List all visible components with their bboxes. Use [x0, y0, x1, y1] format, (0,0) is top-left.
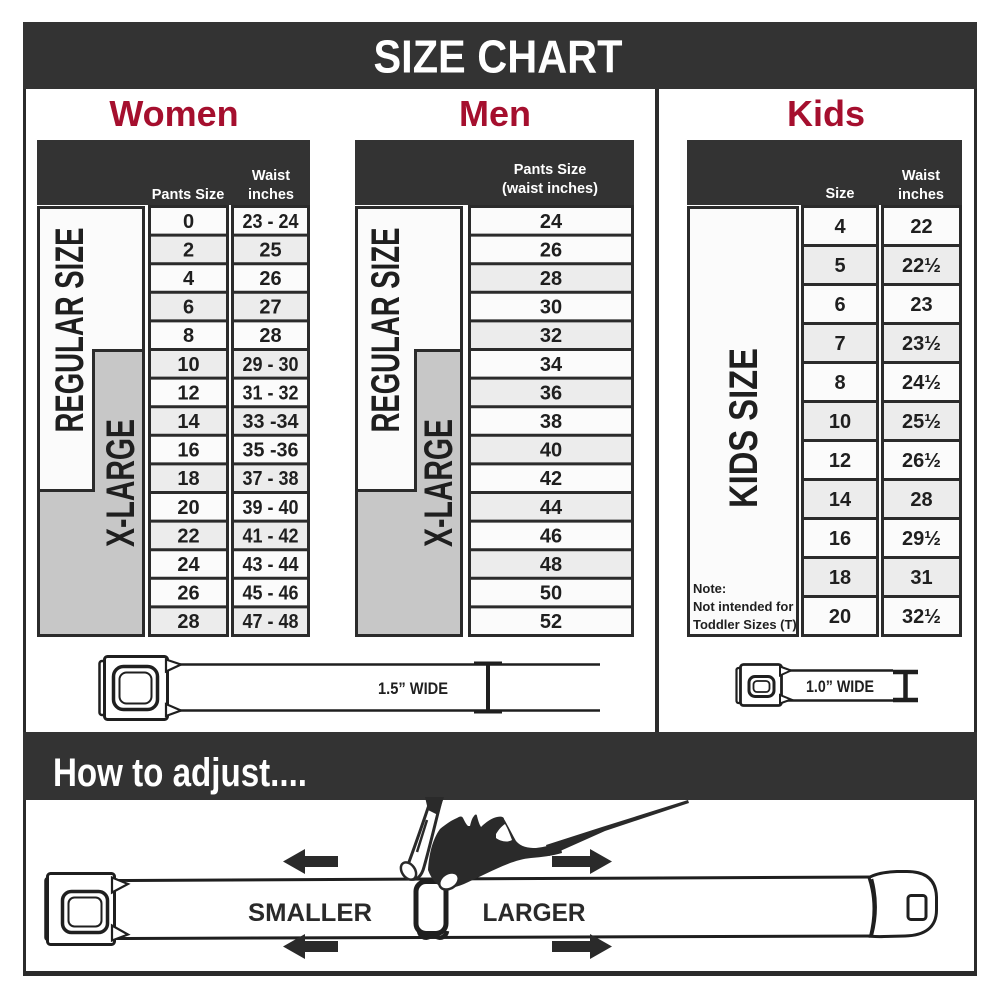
svg-text:SMALLER: SMALLER [248, 899, 372, 927]
svg-text:12: 12 [177, 382, 199, 404]
svg-text:6: 6 [183, 297, 194, 319]
svg-text:Men: Men [459, 93, 531, 134]
svg-text:How to adjust....: How to adjust.... [53, 751, 307, 795]
svg-text:40: 40 [540, 440, 562, 462]
svg-text:1.5” WIDE: 1.5” WIDE [378, 679, 448, 698]
svg-text:KIDS SIZE: KIDS SIZE [722, 348, 766, 508]
svg-text:22½: 22½ [902, 255, 941, 277]
svg-text:32½: 32½ [902, 606, 941, 628]
svg-text:47 - 48: 47 - 48 [243, 611, 299, 633]
svg-text:23½: 23½ [902, 333, 941, 355]
svg-text:12: 12 [829, 450, 851, 472]
svg-text:22: 22 [177, 525, 199, 547]
svg-text:25: 25 [259, 239, 281, 261]
svg-text:SIZE CHART: SIZE CHART [374, 31, 623, 83]
svg-text:24: 24 [540, 211, 563, 233]
svg-text:X-LARGE: X-LARGE [417, 419, 461, 547]
svg-text:14: 14 [177, 411, 200, 433]
svg-text:34: 34 [540, 354, 563, 376]
svg-text:10: 10 [177, 354, 199, 376]
svg-text:2: 2 [183, 239, 194, 261]
svg-text:X-LARGE: X-LARGE [99, 419, 143, 547]
svg-text:50: 50 [540, 583, 562, 605]
svg-text:7: 7 [834, 333, 845, 355]
svg-text:Waist: Waist [902, 168, 940, 184]
svg-text:REGULAR SIZE: REGULAR SIZE [48, 228, 92, 433]
svg-text:52: 52 [540, 611, 562, 633]
svg-text:31: 31 [910, 567, 932, 589]
svg-text:Waist: Waist [252, 168, 290, 184]
svg-text:26: 26 [259, 268, 281, 290]
svg-text:39 - 40: 39 - 40 [243, 497, 299, 519]
svg-text:REGULAR SIZE: REGULAR SIZE [364, 228, 408, 433]
svg-text:Pants Size: Pants Size [152, 187, 225, 203]
svg-text:28: 28 [910, 489, 932, 511]
svg-text:Size: Size [825, 186, 854, 202]
svg-text:Women: Women [109, 93, 238, 134]
svg-text:48: 48 [540, 554, 562, 576]
svg-text:(waist inches): (waist inches) [502, 181, 598, 197]
svg-text:Pants Size: Pants Size [514, 162, 587, 178]
svg-text:20: 20 [829, 606, 851, 628]
svg-text:29½: 29½ [902, 528, 941, 550]
svg-text:44: 44 [540, 497, 563, 519]
svg-text:30: 30 [540, 297, 562, 319]
svg-text:43 - 44: 43 - 44 [243, 554, 300, 576]
svg-text:26: 26 [177, 583, 199, 605]
svg-text:5: 5 [834, 255, 845, 277]
svg-text:22: 22 [910, 216, 932, 238]
svg-text:26½: 26½ [902, 450, 941, 472]
svg-text:29 - 30: 29 - 30 [243, 354, 299, 376]
svg-text:1.0” WIDE: 1.0” WIDE [806, 677, 874, 696]
svg-text:0: 0 [183, 211, 194, 233]
svg-text:42: 42 [540, 468, 562, 490]
svg-text:18: 18 [829, 567, 851, 589]
svg-text:24½: 24½ [902, 372, 941, 394]
svg-text:32: 32 [540, 325, 562, 347]
svg-text:16: 16 [829, 528, 851, 550]
svg-text:36: 36 [540, 382, 562, 404]
svg-text:4: 4 [183, 268, 195, 290]
svg-text:28: 28 [259, 325, 281, 347]
svg-text:LARGER: LARGER [483, 899, 586, 927]
svg-text:Toddler Sizes (T): Toddler Sizes (T) [693, 617, 797, 632]
svg-text:46: 46 [540, 525, 562, 547]
svg-text:Not intended for: Not intended for [693, 599, 793, 614]
svg-text:25½: 25½ [902, 411, 941, 433]
svg-text:8: 8 [834, 372, 845, 394]
svg-text:4: 4 [834, 216, 846, 238]
svg-text:23: 23 [910, 294, 932, 316]
svg-text:14: 14 [829, 489, 852, 511]
svg-text:8: 8 [183, 325, 194, 347]
svg-text:31 - 32: 31 - 32 [243, 382, 299, 404]
svg-text:37 - 38: 37 - 38 [243, 468, 299, 490]
svg-text:20: 20 [177, 497, 199, 519]
svg-text:41 - 42: 41 - 42 [243, 525, 299, 547]
svg-text:45 - 46: 45 - 46 [243, 583, 299, 605]
svg-text:inches: inches [248, 187, 294, 203]
svg-text:10: 10 [829, 411, 851, 433]
svg-text:Kids: Kids [787, 93, 865, 134]
svg-text:28: 28 [540, 268, 562, 290]
svg-text:24: 24 [177, 554, 200, 576]
svg-text:26: 26 [540, 239, 562, 261]
svg-text:inches: inches [898, 187, 944, 203]
svg-text:23 - 24: 23 - 24 [243, 211, 300, 233]
svg-text:35 -36: 35 -36 [243, 440, 299, 462]
svg-text:38: 38 [540, 411, 562, 433]
svg-text:18: 18 [177, 468, 199, 490]
svg-text:Note:: Note: [693, 581, 726, 596]
svg-text:33 -34: 33 -34 [243, 411, 300, 433]
svg-text:6: 6 [834, 294, 845, 316]
svg-text:28: 28 [177, 611, 199, 633]
svg-text:27: 27 [259, 297, 281, 319]
svg-text:16: 16 [177, 440, 199, 462]
